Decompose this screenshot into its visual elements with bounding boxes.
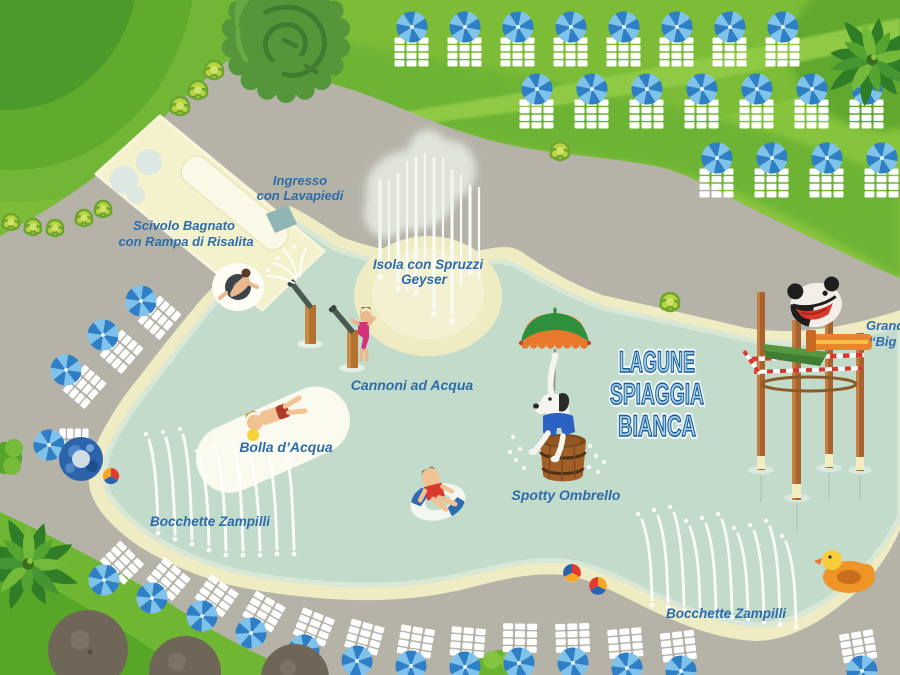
svg-text:LAGUNE: LAGUNE (619, 346, 695, 379)
svg-text:con Lavapiedi: con Lavapiedi (257, 188, 344, 203)
svg-text:Spotty Ombrello: Spotty Ombrello (512, 487, 621, 503)
svg-text:BIANCA: BIANCA (618, 410, 696, 443)
svg-text:Scivolo Bagnato: Scivolo Bagnato (133, 218, 235, 233)
svg-text:“Big Spl: “Big Spl (869, 334, 900, 349)
svg-text:Ingresso: Ingresso (273, 173, 327, 188)
svg-text:SPIAGGIA: SPIAGGIA (610, 378, 704, 411)
svg-text:Bocchette Zampilli: Bocchette Zampilli (666, 606, 786, 621)
svg-text:Bocchette Zampilli: Bocchette Zampilli (150, 514, 270, 529)
svg-text:con Rampa di Risalita: con Rampa di Risalita (118, 234, 253, 249)
svg-text:Bolla d’Acqua: Bolla d’Acqua (239, 439, 333, 455)
svg-text:Cannoni ad Acqua: Cannoni ad Acqua (351, 377, 474, 393)
svg-text:Grande: Grande (866, 318, 900, 333)
svg-text:Geyser: Geyser (401, 272, 448, 287)
svg-text:Isola con Spruzzi: Isola con Spruzzi (373, 257, 484, 272)
